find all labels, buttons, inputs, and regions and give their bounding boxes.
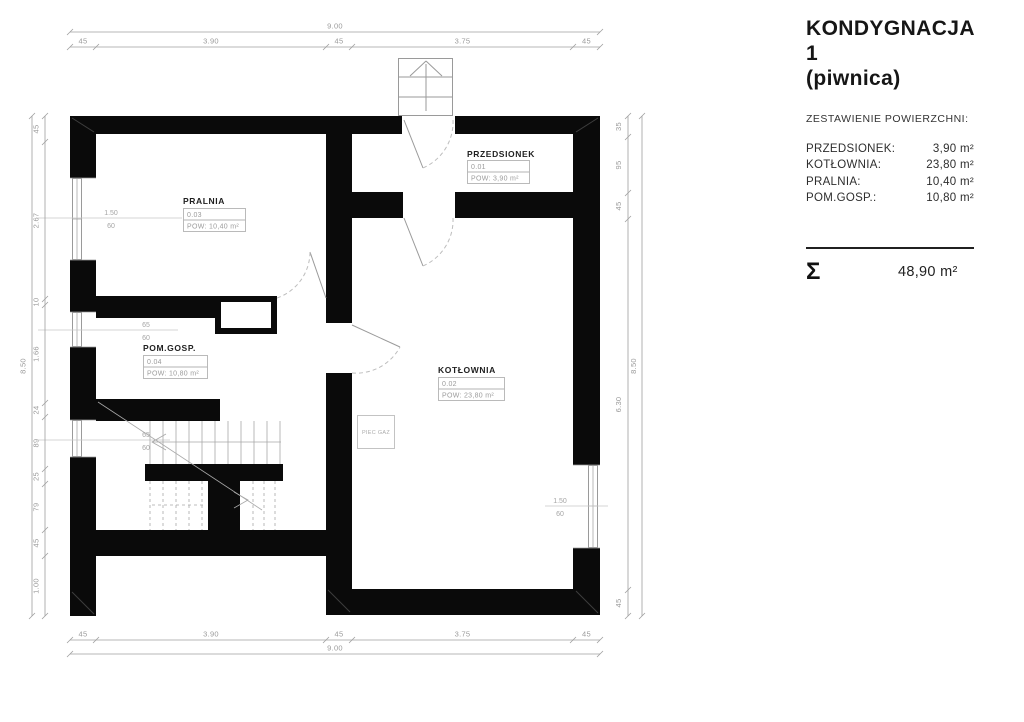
room-title: PRALNIA xyxy=(183,196,225,206)
entrance-stoop xyxy=(399,59,453,116)
area-row-pomgosp: POM.GOSP.: 10,80 m² xyxy=(806,190,974,207)
area-row-pralnia: PRALNIA: 10,40 m² xyxy=(806,174,974,191)
dim-top-seg: 3.75 xyxy=(455,37,471,46)
door-kotlownia-side-leaf xyxy=(352,325,400,347)
dim-bottom-seg: 3.75 xyxy=(455,630,471,639)
area-row-label: PRALNIA: xyxy=(806,174,861,191)
window-leaders xyxy=(38,218,608,506)
window-pomgosp xyxy=(70,312,96,347)
wall-bottom-right xyxy=(326,589,600,615)
wall-bottom-left xyxy=(70,530,352,556)
dim-right-seg: 95 xyxy=(614,161,623,170)
area-row-label: POM.GOSP.: xyxy=(806,190,877,207)
dim-left-seg: 10 xyxy=(32,298,41,307)
dim-right-seg: 6.30 xyxy=(614,397,623,413)
dim-bottom-seg: 3.90 xyxy=(203,630,219,639)
dim-bottom-seg: 45 xyxy=(335,630,344,639)
dim-top-total: 9.00 xyxy=(327,22,343,31)
storey-subtitle: (piwnica) xyxy=(806,67,901,90)
window-stairs xyxy=(70,420,96,457)
wall-left-2 xyxy=(70,260,96,312)
area-row-value: 10,80 m² xyxy=(926,190,974,207)
floor-plan: 1.50 60 65 60 65 60 1.50 60 xyxy=(0,0,720,722)
room-area: POW: 3,90 m² xyxy=(471,176,519,183)
storey-title: KONDYGNACJA 1 xyxy=(806,17,974,65)
room-label-kotlownia: KOTŁOWNIA 0.02 POW: 23,80 m² xyxy=(438,365,505,401)
dim-top-seg: 3.90 xyxy=(203,37,219,46)
area-row-label: PRZEDSIONEK: xyxy=(806,141,895,158)
wall-spine-upper xyxy=(326,134,352,323)
door-kotlownia-entry-leaf xyxy=(404,218,423,266)
dim-left-seg: 45 xyxy=(32,539,41,548)
walls xyxy=(70,116,600,616)
dim-bottom-seg: 45 xyxy=(79,630,88,639)
dim-right-seg: 35 xyxy=(614,122,623,131)
room-title: PRZEDSIONEK xyxy=(467,149,535,159)
window-pralnia xyxy=(70,178,96,260)
dim-left-seg: 45 xyxy=(32,125,41,134)
sum-divider xyxy=(806,247,974,249)
door-swing-arcs xyxy=(277,120,453,373)
dim-bottom-total: 9.00 xyxy=(327,644,343,653)
dim-left-seg: 1.00 xyxy=(32,578,41,594)
door-pralnia-leaf xyxy=(310,252,326,298)
total-area-value: 48,90 m² xyxy=(898,264,958,280)
area-row-value: 3,90 m² xyxy=(933,141,974,158)
dim-top-seg: 45 xyxy=(582,37,591,46)
dim-right-seg: 45 xyxy=(614,202,623,211)
area-row-value: 10,40 m² xyxy=(926,174,974,191)
room-number: 0.04 xyxy=(147,359,162,366)
dim-bottom-seg: 45 xyxy=(582,630,591,639)
dim-left-seg: 24 xyxy=(32,406,41,415)
dim-left-seg: 79 xyxy=(32,503,41,512)
up-arrow-icon xyxy=(410,61,442,111)
window4-sill-label: 60 xyxy=(556,511,564,518)
room-area: POW: 23,80 m² xyxy=(442,393,494,400)
window1-sill-label: 60 xyxy=(107,223,115,230)
window-kotlownia xyxy=(573,465,600,548)
dim-left-total: 8.50 xyxy=(19,358,28,374)
window4-width-label: 1.50 xyxy=(553,498,567,505)
dim-left-seg: 2.67 xyxy=(32,213,41,229)
wall-pomgosp-bottom xyxy=(96,399,220,421)
dim-right-total: 8.50 xyxy=(629,358,638,374)
area-row-kotlownia: KOTŁOWNIA: 23,80 m² xyxy=(806,157,974,174)
room-number: 0.02 xyxy=(442,381,457,388)
room-area: POW: 10,80 m² xyxy=(147,371,199,378)
wall-left-3 xyxy=(70,347,96,420)
window3-sill-label: 60 xyxy=(142,445,150,452)
shaft-inner xyxy=(221,302,271,328)
area-row-value: 23,80 m² xyxy=(926,157,974,174)
screenshot-root: 1.50 60 65 60 65 60 1.50 60 xyxy=(0,0,1024,722)
legend-panel: KONDYGNACJA 1 (piwnica) ZESTAWIENIE POWI… xyxy=(806,16,974,286)
gas-furnace-label: PIEC GAZ xyxy=(362,430,390,436)
wall-przedsionek-1 xyxy=(352,192,403,218)
wall-przedsionek-2 xyxy=(455,192,573,218)
window2-sill-label: 60 xyxy=(142,335,150,342)
room-area: POW: 10,40 m² xyxy=(187,224,239,231)
room-label-pomgosp: POM.GOSP. 0.04 POW: 10,80 m² xyxy=(143,343,208,379)
dim-left-seg: 25 xyxy=(32,472,41,481)
area-row-label: KOTŁOWNIA: xyxy=(806,157,881,174)
dim-top-seg: 45 xyxy=(335,37,344,46)
window2-width-label: 65 xyxy=(142,322,150,329)
dim-right-seg: 45 xyxy=(614,599,623,608)
room-number: 0.03 xyxy=(187,212,202,219)
area-summary-heading: ZESTAWIENIE POWIERZCHNI: xyxy=(806,113,974,125)
dim-left-seg: 1.66 xyxy=(32,346,41,362)
room-title: POM.GOSP. xyxy=(143,343,196,353)
area-table: PRZEDSIONEK: 3,90 m² KOTŁOWNIA: 23,80 m²… xyxy=(806,141,974,207)
gas-furnace: PIEC GAZ xyxy=(358,416,395,449)
room-label-przedsionek: PRZEDSIONEK 0.01 POW: 3,90 m² xyxy=(467,149,535,184)
wall-spine-lower xyxy=(326,373,352,589)
total-area-row: Σ 48,90 m² xyxy=(806,258,974,286)
page-title: KONDYGNACJA 1 (piwnica) xyxy=(806,16,974,92)
room-number: 0.01 xyxy=(471,164,486,171)
wall-right-1 xyxy=(573,116,600,465)
window1-width-label: 1.50 xyxy=(104,210,118,217)
door-entrance-leaf xyxy=(404,120,423,168)
wall-stair-vertical xyxy=(208,481,240,530)
area-row-przedsionek: PRZEDSIONEK: 3,90 m² xyxy=(806,141,974,158)
wall-top-left xyxy=(70,116,402,134)
dim-left-seg: 89 xyxy=(32,439,41,448)
dim-top-seg: 45 xyxy=(79,37,88,46)
wall-pralnia-bottom xyxy=(96,296,215,318)
sigma-icon: Σ xyxy=(806,258,820,286)
room-title: KOTŁOWNIA xyxy=(438,365,496,375)
room-label-pralnia: PRALNIA 0.03 POW: 10,40 m² xyxy=(183,196,246,232)
